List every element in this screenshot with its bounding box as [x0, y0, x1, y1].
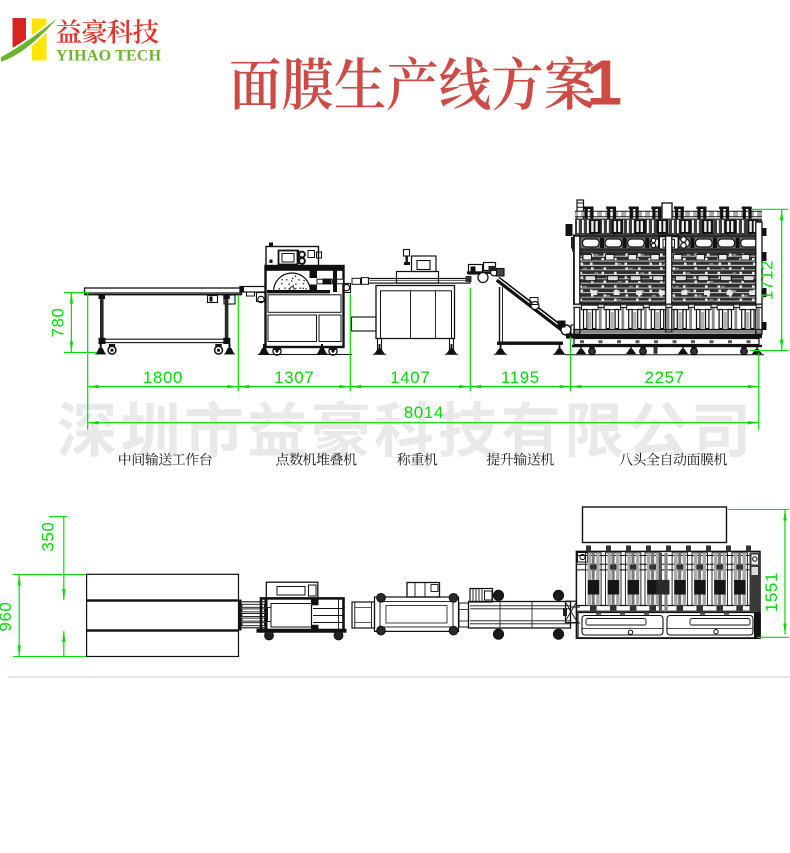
svg-text:1307: 1307 [274, 368, 314, 387]
svg-text:1800: 1800 [143, 368, 183, 387]
svg-text:1551: 1551 [762, 572, 781, 612]
svg-text:1407: 1407 [390, 368, 430, 387]
svg-text:350: 350 [38, 521, 57, 551]
svg-text:1712: 1712 [757, 260, 776, 300]
svg-text:1: 1 [587, 47, 623, 119]
svg-text:YIHAO TECH: YIHAO TECH [56, 48, 162, 65]
svg-text:2257: 2257 [645, 368, 685, 387]
svg-text:960: 960 [0, 601, 15, 631]
svg-text:780: 780 [49, 307, 68, 337]
svg-text:1195: 1195 [501, 368, 540, 387]
svg-text:8014: 8014 [404, 403, 444, 422]
